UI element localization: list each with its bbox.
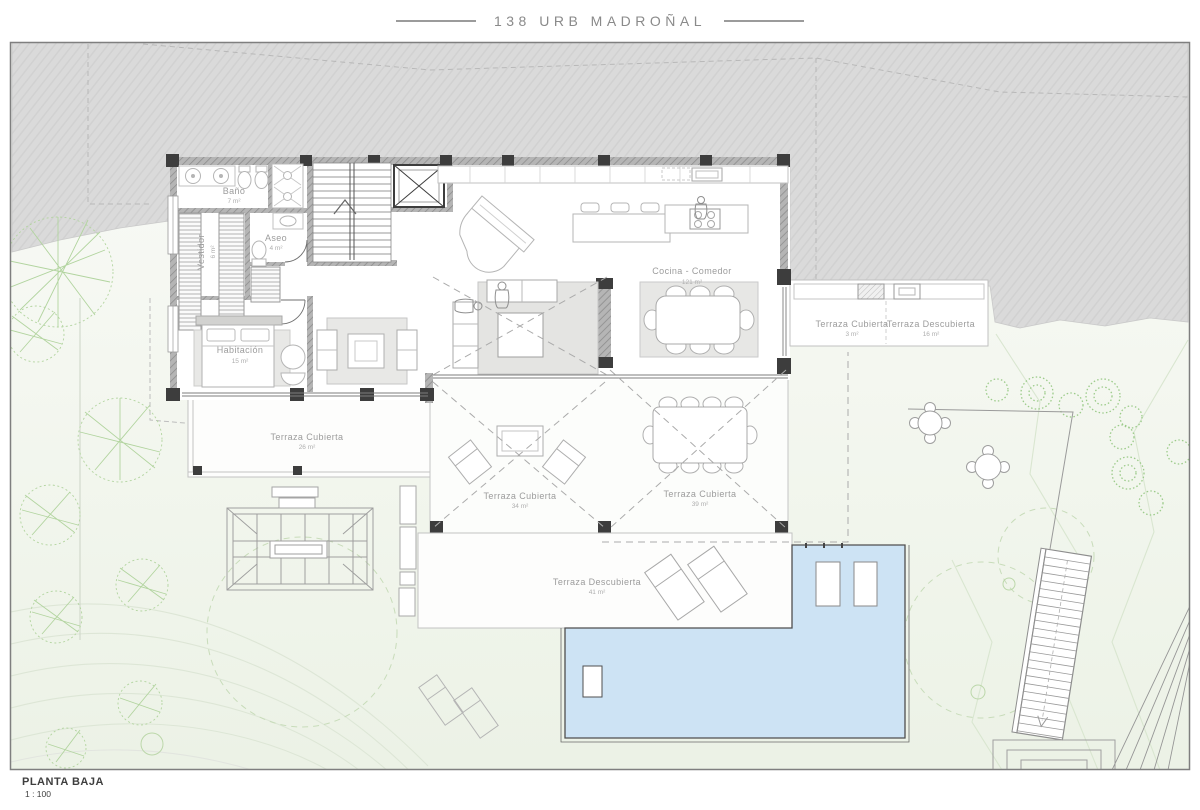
coffee-table bbox=[498, 313, 543, 357]
toilet bbox=[252, 241, 266, 259]
pillow bbox=[241, 329, 269, 341]
plan-scale: 1 : 100 bbox=[25, 789, 104, 800]
pool-lounger bbox=[854, 562, 877, 606]
sink bbox=[280, 216, 296, 226]
room-area: 15 m² bbox=[232, 358, 249, 365]
room-label: Vestidor bbox=[196, 234, 206, 270]
room-label: Baño bbox=[223, 186, 246, 196]
coffee-table bbox=[348, 334, 384, 368]
dining-table bbox=[656, 296, 740, 344]
wardrobe bbox=[219, 213, 244, 330]
elevator bbox=[394, 165, 444, 207]
outdoor-dining-table bbox=[653, 407, 747, 463]
room-area: 41 m² bbox=[589, 589, 606, 596]
bidet bbox=[255, 172, 268, 189]
room-area: 6 m² bbox=[210, 245, 217, 259]
room-area: 7 m² bbox=[228, 198, 242, 205]
room-label: Cocina - Comedor bbox=[652, 266, 731, 276]
bbq-appliance bbox=[858, 284, 884, 299]
kitchen-island bbox=[573, 214, 670, 242]
pergola-bench bbox=[279, 498, 315, 508]
sitting-room-furniture bbox=[317, 318, 417, 384]
room-label: Terraza Descubierta bbox=[553, 577, 641, 587]
garden-planter-steps bbox=[399, 486, 416, 616]
title-block: PLANTA BAJA 1 : 100 bbox=[22, 776, 104, 800]
title-rule-left bbox=[396, 20, 476, 22]
room-area: 3 m² bbox=[846, 331, 860, 338]
floor-plan-drawing: Baño 7 m² Aseo 4 m² Vestidor 6 m² Habita… bbox=[0, 0, 1200, 810]
room-label: Terraza Cubierta bbox=[816, 319, 889, 329]
room-label: Terraza Cubierta bbox=[271, 432, 344, 442]
room-area: 121 m² bbox=[682, 279, 703, 286]
terrace-39-dining bbox=[643, 397, 757, 473]
sheet-header: 138 URB MADROÑAL bbox=[0, 13, 1200, 29]
room-label: Terraza Cubierta bbox=[484, 491, 557, 501]
floor-plan-sheet: 138 URB MADROÑAL bbox=[0, 0, 1200, 810]
room-area: 16 m² bbox=[923, 331, 940, 338]
room-label: Terraza Descubierta bbox=[887, 319, 975, 329]
pool-lounger bbox=[816, 562, 840, 606]
pillow bbox=[207, 329, 235, 341]
plan-name: PLANTA BAJA bbox=[22, 776, 104, 790]
interior-stairs bbox=[313, 163, 391, 262]
bar-stool bbox=[581, 203, 599, 212]
bar-stool bbox=[611, 203, 629, 212]
sheet-title: 138 URB MADROÑAL bbox=[494, 13, 706, 29]
kitchen-counter bbox=[438, 166, 788, 183]
wardrobe bbox=[179, 213, 201, 330]
room-label: Terraza Cubierta bbox=[664, 489, 737, 499]
room-label: Aseo bbox=[265, 233, 287, 243]
headboard bbox=[196, 316, 282, 325]
closet bbox=[251, 267, 280, 302]
room-area: 34 m² bbox=[512, 503, 529, 510]
room-area: 26 m² bbox=[299, 444, 316, 451]
room-label: Habitación bbox=[217, 345, 264, 355]
pool-steps bbox=[583, 666, 602, 697]
pergola-bench bbox=[272, 487, 318, 497]
title-rule-right bbox=[724, 20, 804, 22]
shower bbox=[272, 164, 303, 208]
bar-stool bbox=[641, 203, 659, 212]
toilet-tank bbox=[252, 259, 266, 266]
dining-set bbox=[640, 282, 758, 357]
room-area: 4 m² bbox=[270, 245, 284, 252]
round-chair bbox=[281, 345, 305, 369]
room-area: 39 m² bbox=[692, 501, 709, 508]
